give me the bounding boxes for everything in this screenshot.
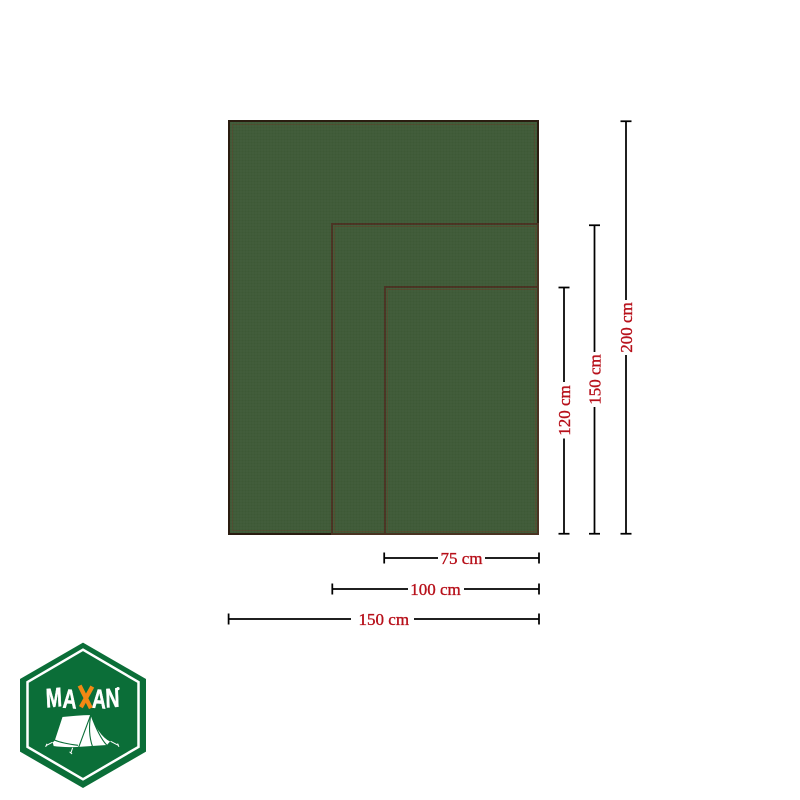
svg-text:120 cm: 120 cm — [555, 385, 574, 436]
svg-text:200 cm: 200 cm — [617, 302, 636, 353]
svg-text:100 cm: 100 cm — [410, 580, 461, 599]
svg-text:75 cm: 75 cm — [440, 549, 482, 568]
svg-text:150 cm: 150 cm — [359, 610, 410, 629]
svg-text:MA: MA — [45, 682, 77, 714]
svg-text:150 cm: 150 cm — [585, 354, 604, 405]
